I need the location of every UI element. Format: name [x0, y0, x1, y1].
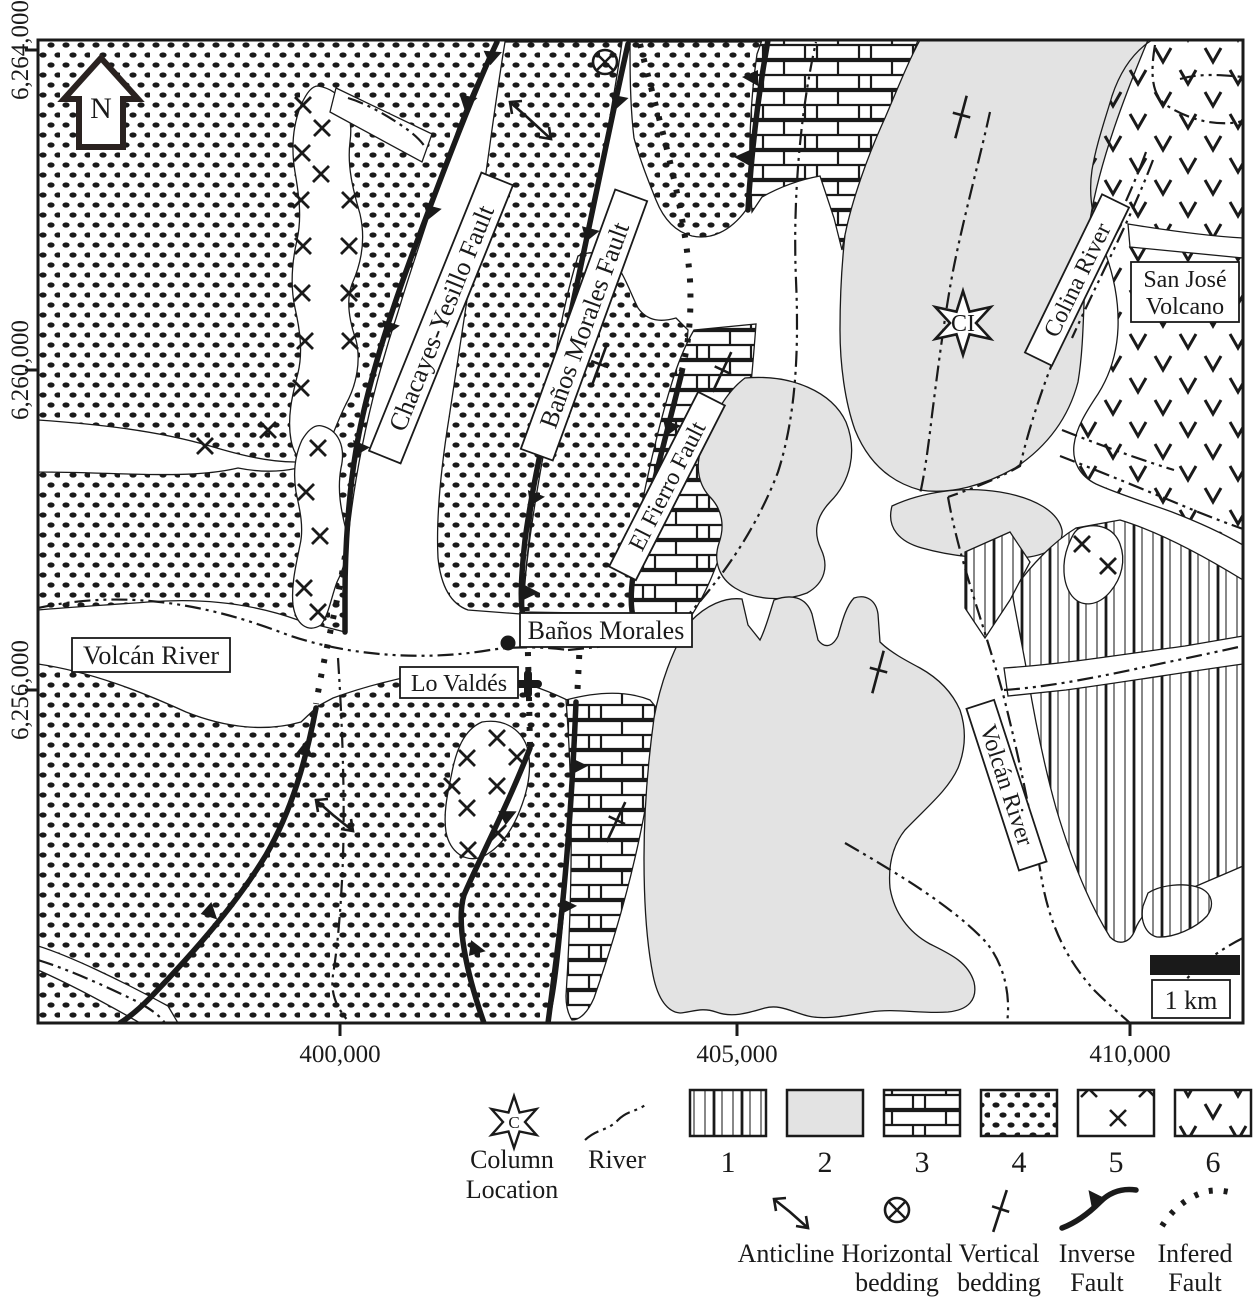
north-arrow-label: N	[90, 92, 112, 125]
legend-vertical-bedding: Vertical bedding	[957, 1187, 1041, 1297]
x-tick-label: 400,000	[299, 1041, 380, 1068]
infered-fault-icon	[1162, 1191, 1229, 1227]
svg-text:Lo Valdés: Lo Valdés	[411, 671, 507, 697]
map-svg: CI Volcán River Baños Morales Lo Valdés …	[0, 0, 1255, 1298]
legend: C Column Location River 1 2 3 4 5 6	[466, 1090, 1251, 1297]
x-tick-label: 405,000	[696, 1041, 777, 1068]
unit6-number: 6	[1206, 1146, 1221, 1179]
town-marker-banos-morales	[501, 636, 516, 651]
scale-bar-rect	[1150, 955, 1240, 975]
legend-anticline: Anticline	[738, 1198, 835, 1268]
unit4-number: 4	[1012, 1146, 1027, 1179]
svg-text:Fault: Fault	[1070, 1268, 1124, 1297]
svg-text:Volcano: Volcano	[1146, 294, 1224, 320]
inverse-fault-icon	[1062, 1190, 1136, 1229]
legend-river: River	[585, 1103, 648, 1174]
svg-text:Inverse: Inverse	[1059, 1239, 1136, 1268]
svg-text:Location: Location	[466, 1175, 558, 1204]
unit2-number: 2	[818, 1146, 833, 1179]
x-tick-label: 410,000	[1089, 1041, 1170, 1068]
y-tick-label: 6,260,000	[7, 320, 34, 420]
label-banos-morales-town: Baños Morales	[520, 613, 692, 647]
svg-text:Anticline: Anticline	[738, 1239, 835, 1268]
y-tick-label: 6,264,000	[7, 0, 34, 100]
unit4-swatch	[981, 1090, 1057, 1136]
legend-units: 1 2 3 4 5 6	[690, 1090, 1251, 1179]
svg-text:Infered: Infered	[1157, 1239, 1232, 1268]
unit5-swatch	[1078, 1090, 1154, 1136]
unit1-number: 1	[721, 1146, 736, 1179]
label-lo-valdes: Lo Valdés	[400, 667, 518, 698]
svg-text:Column: Column	[470, 1145, 554, 1174]
geologic-map-figure: CI Volcán River Baños Morales Lo Valdés …	[0, 0, 1255, 1298]
svg-text:Horizontal: Horizontal	[841, 1239, 952, 1268]
label-san-jose-volcano: San José Volcano	[1131, 262, 1239, 322]
river-line-icon	[585, 1103, 648, 1140]
legend-symbols: Anticline Horizontal bedding Vertical be…	[738, 1186, 1233, 1297]
svg-text:San José: San José	[1143, 267, 1226, 293]
horizontal-bedding-cross	[889, 1202, 905, 1218]
scale-bar: 1 km	[1150, 955, 1240, 1018]
scale-bar-label: 1 km	[1165, 986, 1218, 1015]
unit2-swatch	[787, 1090, 863, 1136]
svg-text:Volcán River: Volcán River	[83, 641, 219, 670]
unit1-swatch	[690, 1090, 766, 1136]
anticline-icon	[775, 1200, 808, 1228]
legend-infered-fault: Infered Fault	[1157, 1191, 1232, 1298]
svg-text:Baños Morales: Baños Morales	[528, 616, 685, 645]
svg-text:River: River	[588, 1145, 646, 1174]
vertical-bedding-icon	[985, 1187, 1016, 1234]
unit3-swatch	[884, 1090, 960, 1136]
svg-text:Fault: Fault	[1168, 1268, 1222, 1297]
label-volcan-river-west: Volcán River	[72, 638, 230, 672]
column-star-label: CI	[951, 311, 975, 337]
svg-text:bedding: bedding	[957, 1268, 1041, 1297]
unit5-number: 5	[1109, 1146, 1124, 1179]
legend-column-location: C Column Location	[466, 1096, 558, 1204]
legend-inverse-fault: Inverse Fault	[1059, 1186, 1136, 1297]
unit6-swatch	[1175, 1090, 1251, 1136]
svg-text:Vertical: Vertical	[959, 1239, 1040, 1268]
y-tick-label: 6,256,000	[7, 640, 34, 740]
legend-star-letter: C	[508, 1113, 519, 1132]
svg-text:bedding: bedding	[855, 1268, 939, 1297]
unit3-number: 3	[915, 1146, 930, 1179]
legend-horizontal-bedding: Horizontal bedding	[841, 1198, 952, 1297]
